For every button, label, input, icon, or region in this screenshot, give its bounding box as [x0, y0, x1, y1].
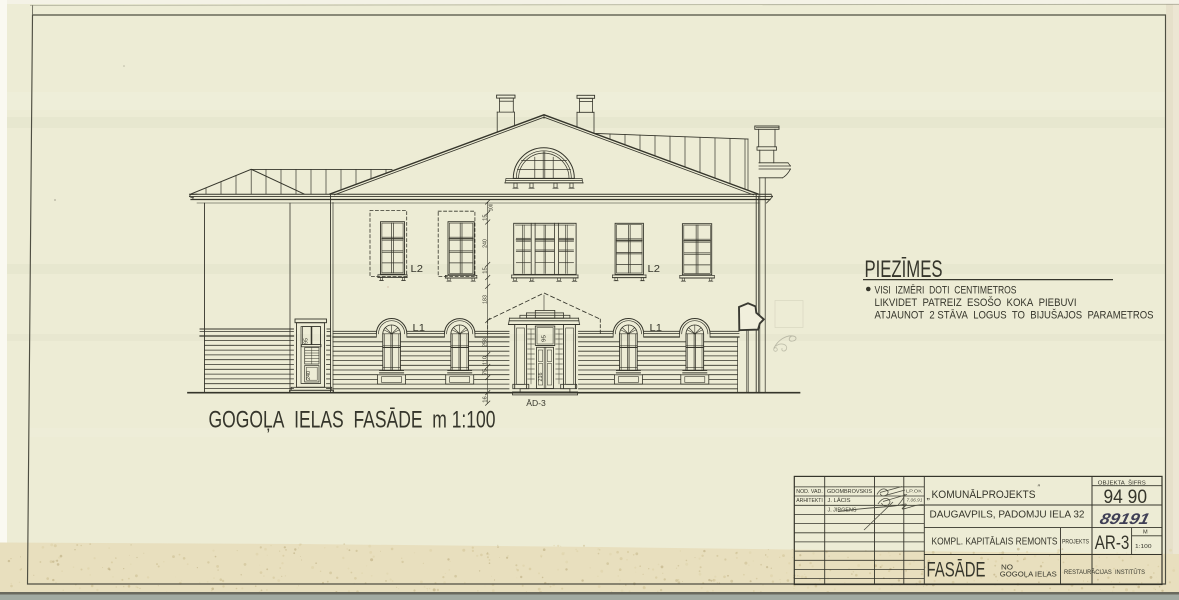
svg-text:95: 95	[542, 335, 548, 342]
svg-text:LP.OK: LP.OK	[906, 489, 922, 494]
svg-text:ARHITEKTI: ARHITEKTI	[796, 498, 823, 504]
svg-text:M: M	[1143, 530, 1148, 536]
svg-text:183: 183	[482, 295, 488, 304]
svg-text:KOMUNĀLPROJEKTS: KOMUNĀLPROJEKTS	[932, 489, 1036, 501]
svg-text:94 90: 94 90	[1104, 486, 1148, 508]
svg-text:89191: 89191	[1098, 511, 1151, 528]
svg-text:GOGOĻA IELAS FASĀDE m 1:100: GOGOĻA IELAS FASĀDE m 1:100	[209, 406, 496, 433]
svg-text:258: 258	[482, 338, 488, 347]
svg-text:VISI IZMĒRI DOTI CENTIMETRO: VISI IZMĒRI DOTI CENTIMETROS	[875, 284, 1017, 296]
svg-text:DAUGAVPILS, PADOMJU IELA 32: DAUGAVPILS, PADOMJU IELA 32	[930, 510, 1085, 521]
svg-text:7.06.91: 7.06.91	[907, 498, 924, 503]
svg-text:KOMPL. KAPITĀLAIS REMONTS: KOMPL. KAPITĀLAIS REMONTS	[932, 536, 1058, 548]
svg-text:PIEZĪMES: PIEZĪMES	[865, 256, 943, 283]
svg-text:15: 15	[482, 267, 488, 274]
svg-text:1:100: 1:100	[1135, 544, 1152, 550]
svg-text:240: 240	[482, 239, 488, 248]
svg-text:L1: L1	[413, 322, 426, 334]
svg-text:110: 110	[482, 356, 488, 365]
svg-text:AR-3: AR-3	[1095, 533, 1130, 554]
svg-text:ĀD-3: ĀD-3	[526, 398, 546, 408]
svg-text:216: 216	[538, 373, 544, 382]
svg-text:GDOMBROVSKIS: GDOMBROVSKIS	[827, 489, 872, 495]
svg-text:95: 95	[303, 338, 309, 344]
svg-text:16: 16	[482, 396, 488, 403]
svg-text:RESTAURĀCIJAS INSTITŪTS: RESTAURĀCIJAS INSTITŪTS	[1064, 568, 1145, 576]
svg-text:100: 100	[488, 204, 494, 211]
svg-text:240: 240	[306, 371, 312, 380]
svg-text:75: 75	[482, 369, 488, 376]
svg-text:„: „	[927, 491, 930, 502]
svg-text:ATJAUNOT 2 STĀVA LOGUS TO: ATJAUNOT 2 STĀVA LOGUS TO BIJUŠAJOS PARA…	[875, 308, 1154, 321]
svg-text:PROJEKTS: PROJEKTS	[1062, 539, 1089, 545]
svg-text:L2: L2	[411, 263, 424, 275]
svg-text:L1: L1	[650, 322, 663, 334]
svg-text:LIKVIDET PATREIZ ESOŠO KOKA: LIKVIDET PATREIZ ESOŠO KOKA PIEBUVI	[875, 296, 1077, 309]
svg-text:FASĀDE: FASĀDE	[927, 558, 986, 581]
svg-text:J. LĀCIS: J. LĀCIS	[828, 497, 851, 504]
svg-text:NOD. VAD.: NOD. VAD.	[796, 489, 823, 495]
svg-text:GOGOĻA IELAS: GOGOĻA IELAS	[1000, 570, 1057, 579]
svg-text:15: 15	[482, 214, 488, 221]
svg-text:L2: L2	[648, 263, 661, 275]
